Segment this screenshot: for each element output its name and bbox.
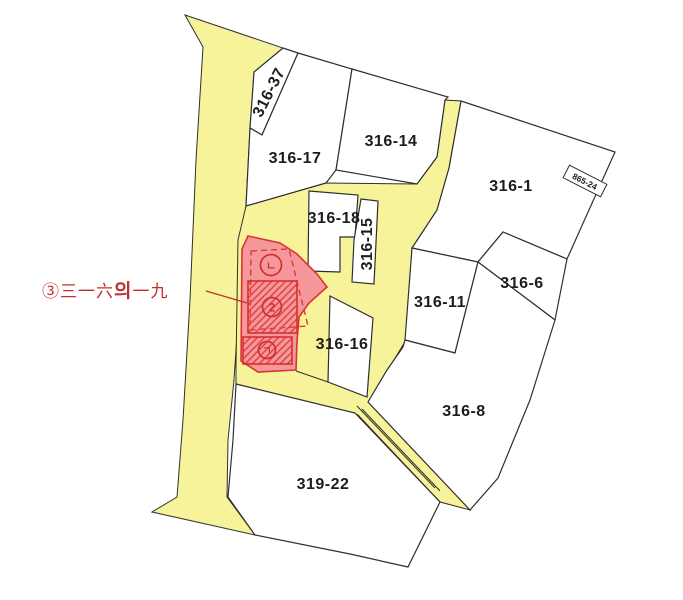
label-316-15: 316-15	[359, 218, 376, 271]
callout-text: ③三一六의一九	[42, 280, 168, 302]
marker-giyeok-glyph: ㄱ	[262, 346, 271, 357]
callout-text-after: 一九	[132, 282, 168, 302]
callout-text-before: 三一六	[60, 282, 114, 302]
callout-circled-index: ③	[42, 282, 60, 302]
label-319-22: 319-22	[297, 476, 350, 493]
label-316-11: 316-11	[414, 294, 466, 311]
label-316-1: 316-1	[489, 178, 532, 195]
label-316-16: 316-16	[316, 336, 369, 353]
marker-2-glyph: 2	[269, 301, 276, 315]
marker-circled-nieun: ㄴ	[261, 255, 282, 276]
cadastral-map-page: 316-37 316-17 316-14 316-18 316-15 316-1…	[0, 0, 683, 600]
callout-text-emphasis: 의	[114, 280, 132, 302]
label-316-14: 316-14	[365, 133, 418, 150]
label-316-17: 316-17	[269, 150, 322, 167]
label-316-6: 316-6	[500, 275, 543, 292]
label-316-8: 316-8	[442, 403, 485, 420]
label-316-18: 316-18	[308, 210, 361, 227]
cadastral-map: 316-37 316-17 316-14 316-18 316-15 316-1…	[0, 0, 683, 600]
marker-nieun-glyph: ㄴ	[266, 261, 276, 273]
